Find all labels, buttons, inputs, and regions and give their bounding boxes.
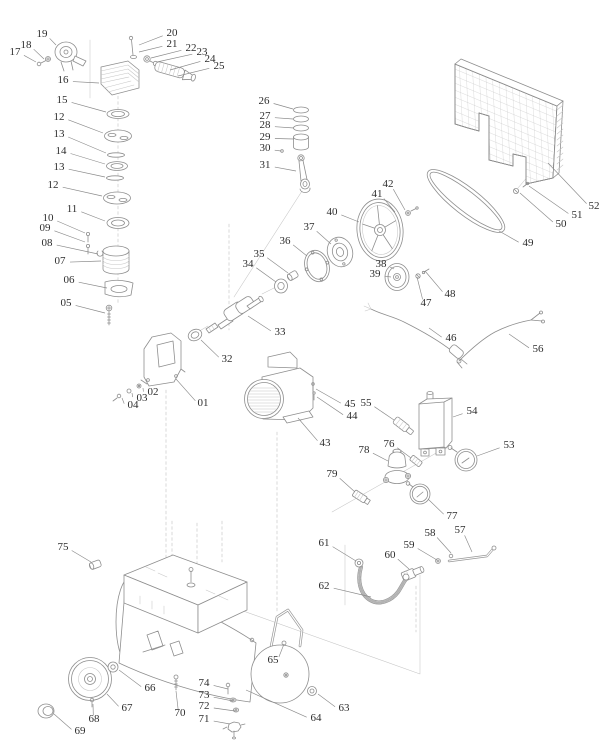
part-label-37: 37 [304,221,316,233]
part-label-11: 11 [67,203,78,215]
leader-line-62 [334,588,371,597]
valve-plate-stack [104,110,132,229]
leader-line-12 [68,120,103,133]
part-label-06: 06 [64,274,76,286]
filter-screws [37,57,50,66]
part-label-45: 45 [345,398,357,410]
part-label-59: 59 [404,539,416,551]
leader-line-13 [68,137,106,153]
part-label-51: 51 [572,209,583,221]
leader-line-31 [275,167,296,171]
part-label-78: 78 [359,444,371,456]
part-label-01: 01 [198,397,209,409]
diagram-canvas: 0102030405060708091011121314131215161718… [0,0,615,755]
part-label-79: 79 [327,468,339,480]
part-label-55: 55 [361,397,373,409]
leader-line-04 [122,398,124,404]
part-label-40: 40 [327,206,339,218]
leader-line-71 [214,721,230,724]
part-label-54: 54 [467,405,479,417]
pressure-gauge [448,446,477,472]
part-label-25: 25 [214,60,226,72]
leader-line-37 [317,231,331,244]
leader-line-27 [275,118,293,119]
part-label-43: 43 [320,437,332,449]
leader-line-56 [509,334,529,348]
part-label-34: 34 [243,258,255,270]
leader-line-18 [34,49,44,59]
oil-seal [186,327,203,343]
part-label-75: 75 [58,541,70,553]
part-label-28: 28 [260,119,272,131]
leader-line-40 [341,215,359,222]
leader-line-34 [256,268,276,282]
braided-hose [355,559,409,602]
leader-line-67 [107,694,119,706]
leader-line-12 [63,187,102,196]
wheel-washer [108,662,118,672]
head-bolt [129,36,136,58]
leader-line-14 [71,154,106,165]
piston-ring-set [281,107,310,193]
leader-line-10 [57,221,85,233]
part-label-73: 73 [199,689,211,701]
leader-line-60 [398,559,409,569]
leader-line-29 [275,139,294,140]
part-label-15: 15 [57,94,69,106]
leader-line-06 [79,282,107,288]
leader-line-08 [57,245,98,254]
outlet-gauge [406,482,430,504]
part-label-33: 33 [275,326,287,338]
part-label-69: 69 [75,725,87,737]
part-label-10: 10 [43,212,55,224]
leader-line-22 [151,50,181,58]
head-screws [86,232,89,254]
part-label-71: 71 [199,713,210,725]
pressure-switch [419,392,452,457]
leader-line-69 [54,714,72,729]
leader-line-13 [69,169,105,177]
leader-line-03 [132,393,133,397]
part-label-52: 52 [589,200,600,212]
piston [97,246,129,274]
exploded-parts-diagram: 0102030405060708091011121314131215161718… [0,0,615,755]
cylinder-gasket [105,280,133,297]
part-label-56: 56 [533,343,545,355]
leader-line-20 [139,36,163,45]
part-label-13: 13 [54,161,66,173]
part-label-12: 12 [48,179,59,191]
leader-line-16 [73,82,99,83]
leader-line-66 [119,670,141,687]
spacer [286,270,299,281]
leader-line-09 [54,231,85,242]
leader-line-19 [50,38,56,45]
part-label-57: 57 [455,524,467,536]
leader-line-15 [72,102,106,112]
part-label-48: 48 [445,288,457,300]
part-label-74: 74 [199,677,211,689]
part-label-16: 16 [58,74,70,86]
air-filter [55,42,86,71]
part-label-63: 63 [339,702,351,714]
part-label-60: 60 [385,549,397,561]
part-label-17: 17 [10,46,22,58]
leader-line-48 [425,271,443,292]
leader-line-53 [477,448,500,456]
drain-plug-75 [89,560,102,571]
part-label-76: 76 [384,438,396,450]
part-label-18: 18 [21,39,33,51]
part-label-22: 22 [186,42,197,54]
leader-line-63 [318,694,335,707]
belt [420,161,512,241]
part-label-12: 12 [54,111,65,123]
leader-line-44 [317,397,343,415]
part-label-41: 41 [372,188,383,200]
leader-line-79 [340,478,355,492]
leader-line-45 [316,389,341,403]
leader-line-35 [267,258,288,273]
supply-cord [457,311,545,363]
part-label-08: 08 [42,237,54,249]
outlet-pipe [436,546,496,563]
leader-line-77 [428,499,444,514]
leader-line-43 [298,418,318,441]
part-label-50: 50 [556,218,568,230]
part-label-47: 47 [421,297,433,309]
part-label-61: 61 [319,537,330,549]
leader-line-58 [437,538,451,554]
leader-line-01 [176,379,195,401]
leader-line-17 [24,55,36,62]
part-label-46: 46 [446,332,458,344]
part-label-67: 67 [122,702,134,714]
leader-line-52 [548,163,587,204]
leader-line-32 [201,340,219,357]
part-label-70: 70 [175,707,187,719]
check-valve [392,416,414,436]
part-label-42: 42 [383,178,394,190]
part-label-02: 02 [148,386,159,398]
part-label-64: 64 [311,712,323,724]
part-label-65: 65 [268,654,280,666]
leader-line-33 [248,316,271,331]
part-label-53: 53 [504,439,516,451]
leader-line-07 [70,261,101,262]
leader-line-05 [76,305,105,313]
bearing [275,279,288,293]
wheel [69,658,112,701]
leader-line-50 [520,193,553,222]
leader-line-72 [214,708,235,711]
fitting-76 [409,455,422,467]
part-label-36: 36 [280,235,292,247]
leader-line-54 [453,414,463,417]
part-label-66: 66 [145,682,157,694]
part-label-32: 32 [222,353,233,365]
leader-line-55 [374,407,394,420]
part-label-49: 49 [523,237,535,249]
leader-line-30 [275,150,281,151]
leader-line-11 [81,212,105,221]
leader-line-61 [333,547,356,561]
flywheel-bolt [406,207,419,216]
leader-line-78 [373,453,388,461]
leader-line-46 [429,328,442,337]
part-label-30: 30 [260,142,272,154]
leader-line-28 [275,127,294,128]
part-label-07: 07 [55,255,67,267]
part-label-77: 77 [447,510,459,522]
part-label-58: 58 [425,527,437,539]
crankcase-bolt [106,305,112,325]
part-label-04: 04 [128,399,140,411]
part-label-31: 31 [260,159,271,171]
leader-line-51 [529,186,568,214]
part-label-39: 39 [370,268,382,280]
part-label-72: 72 [199,700,210,712]
leader-line-75 [72,551,91,563]
crankcase [141,333,185,386]
leader-line-36 [293,245,307,256]
leader-line-57 [465,535,472,552]
hub-cap [38,704,54,718]
part-label-21: 21 [167,38,178,50]
belt-guard [455,59,563,184]
leader-line-59 [418,549,437,561]
leader-line-42 [393,189,405,210]
motor [245,352,314,423]
leader-line-49 [499,231,519,242]
part-label-44: 44 [347,410,359,422]
part-label-26: 26 [259,95,271,107]
part-label-13: 13 [54,128,66,140]
part-label-62: 62 [319,580,330,592]
part-label-68: 68 [89,713,101,725]
leader-line-21 [139,46,162,52]
part-label-14: 14 [56,145,68,157]
leader-line-26 [274,104,293,110]
cylinder-head [101,61,139,95]
flywheel [354,197,406,263]
part-label-05: 05 [61,297,73,309]
crankshaft [206,295,264,333]
part-label-19: 19 [37,28,49,40]
part-label-35: 35 [254,248,266,260]
